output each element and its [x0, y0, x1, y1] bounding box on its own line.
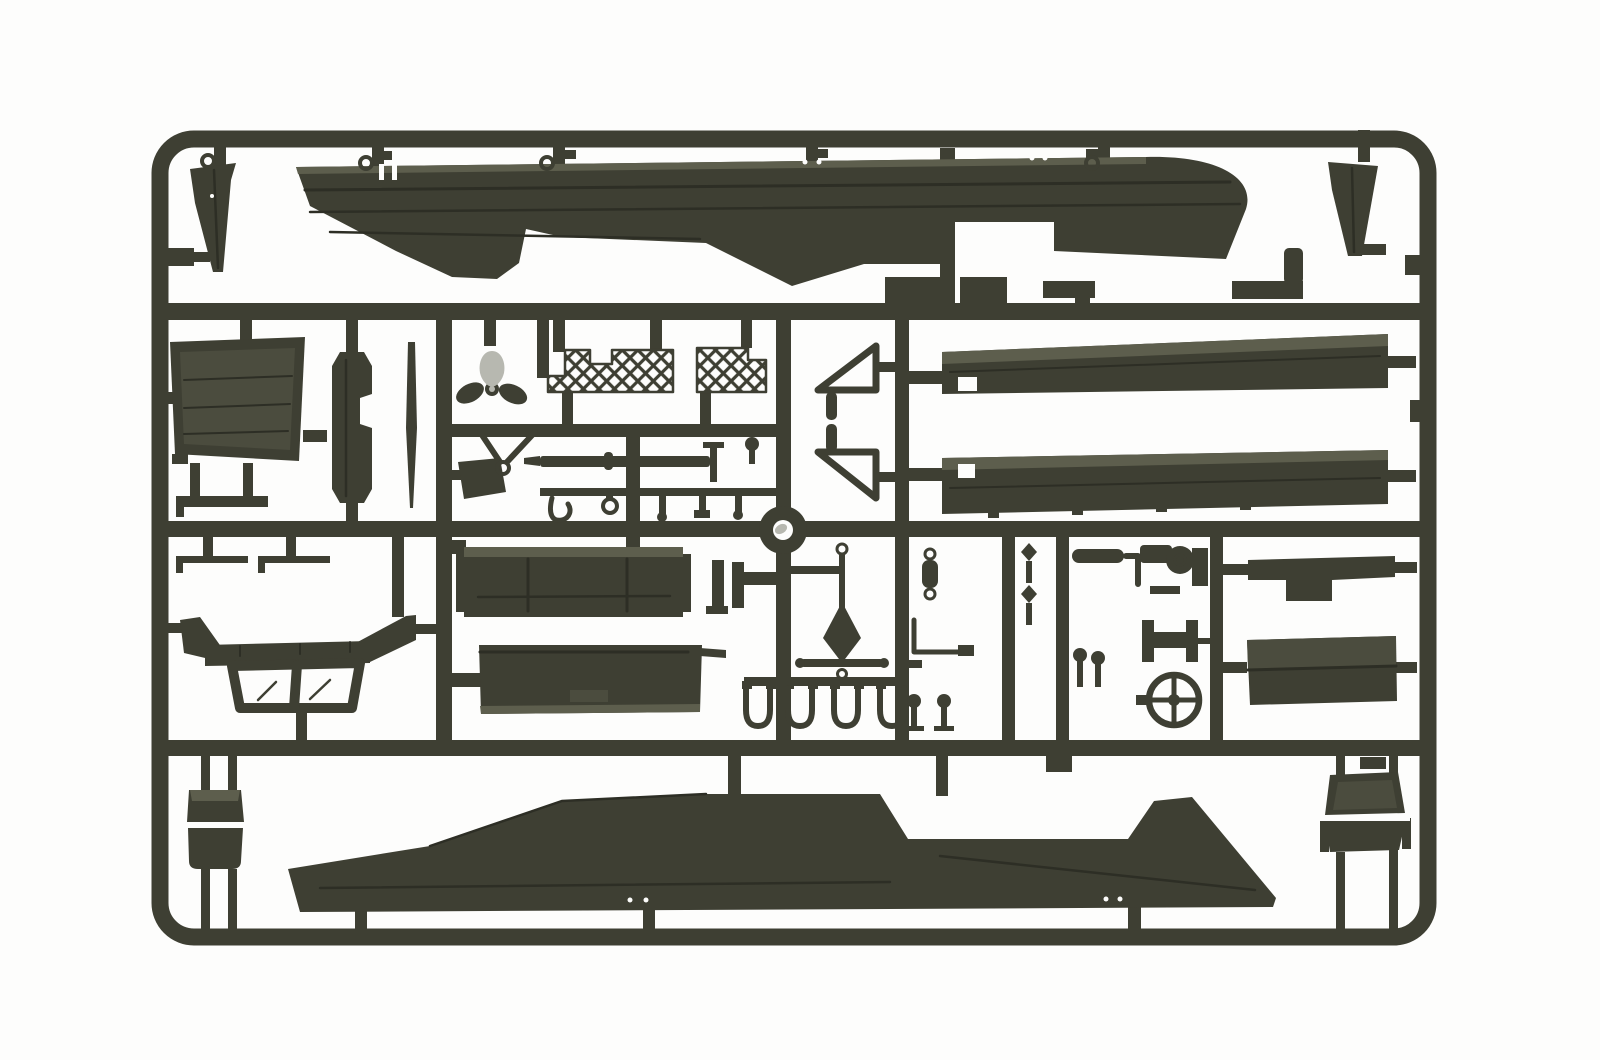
- tray-body: [479, 645, 702, 714]
- sprue-stub: [346, 503, 358, 521]
- seat-back-face: [1333, 780, 1397, 810]
- winch-flange: [1142, 620, 1154, 662]
- winch-axle: [1154, 632, 1186, 648]
- seat-arm: [1402, 818, 1411, 849]
- grab-rod: [258, 556, 330, 563]
- rail-sub-middle: [452, 424, 776, 437]
- suspension-spindle: Suspension spindle: [332, 352, 372, 503]
- sprue-stub: [416, 624, 438, 634]
- radiator-panel-tab: [172, 454, 188, 464]
- seat-cushion: [188, 828, 243, 869]
- sprue-stub: [1388, 470, 1416, 482]
- photo-canvas: Photograph of an injection-moulded plast…: [0, 0, 1600, 1060]
- tray-line: [478, 596, 670, 597]
- barrel-tee-post: [710, 444, 717, 482]
- sprue-stub: [346, 320, 358, 352]
- hull-sink-mark: [379, 164, 384, 180]
- sprue-stub: [448, 673, 482, 687]
- photo-stage: Photograph of an injection-moulded plast…: [0, 0, 1600, 1060]
- tray-top-strip: [464, 547, 683, 557]
- footstep-hook: [176, 505, 184, 517]
- hull-ejector-dot: [1118, 897, 1123, 902]
- sprue-stub: [650, 320, 662, 350]
- grab-rod-bend: [176, 563, 183, 573]
- rail-horizontal-c: [163, 740, 1425, 756]
- hull-ejector-dot: [644, 898, 649, 903]
- seat-rod: [228, 869, 237, 930]
- engine-base: [1150, 586, 1180, 594]
- sprue-stub: [537, 320, 549, 378]
- sprue-stub: [562, 392, 573, 424]
- tee-pin-head: [937, 694, 951, 708]
- anchor-ball: [795, 658, 805, 668]
- plank-hole: [958, 377, 977, 391]
- stowage-bar: [960, 277, 1007, 303]
- sprue-stub: [1395, 562, 1417, 573]
- tray-cap: [681, 554, 691, 612]
- pin: [659, 488, 666, 514]
- barrel-collar: [604, 452, 613, 470]
- seat-arm: [1320, 821, 1329, 852]
- tee-pin-rod: [911, 707, 917, 727]
- radiator-inner: [180, 348, 295, 450]
- engine-muffler: [1072, 549, 1124, 563]
- sprue-stub: [700, 392, 711, 424]
- ball-pin-head: [1073, 648, 1087, 662]
- bracket-arm: [744, 572, 778, 585]
- anchor-ball: [879, 658, 889, 668]
- plank-hole: [958, 464, 975, 478]
- tee-pin-head: [907, 694, 921, 708]
- ball-pin-head: [1091, 651, 1105, 665]
- sprue-stub: [878, 472, 895, 482]
- upper-hull-hinge: [560, 150, 576, 159]
- tee-pin-bar: [904, 726, 924, 731]
- tee-pin-bar: [934, 726, 954, 731]
- ball-pin-rod: [749, 450, 755, 464]
- triangle-link: [826, 392, 837, 420]
- sprue-stub: [440, 540, 466, 554]
- turnbuckle-body: [922, 560, 938, 588]
- winch-crank: [1198, 638, 1214, 644]
- sprue-stub: [1388, 356, 1416, 368]
- hull-ejector-dot: [1104, 897, 1109, 902]
- bracket-plate: [712, 560, 724, 610]
- box-tray-lower: Equipment tray (lower): [479, 645, 726, 714]
- bracket-foot: [706, 606, 728, 614]
- ball-pin-head: [745, 437, 759, 451]
- tee-pin-rod: [941, 707, 947, 727]
- seat-bracket: [1360, 757, 1386, 769]
- sprue-stub: [392, 537, 404, 617]
- seat-rod: [1389, 850, 1398, 930]
- ball-pin-rod: [1077, 661, 1083, 687]
- upper-hull-hinge: [810, 149, 828, 158]
- stowage-bar: [885, 277, 948, 303]
- right-rail-nub: [1410, 400, 1426, 422]
- propeller-spinner-shine: [489, 386, 495, 392]
- sprue-stub: [728, 756, 741, 796]
- sprue-stub: [1223, 564, 1248, 575]
- lever-foot: [908, 660, 922, 668]
- tray-cap: [456, 554, 466, 612]
- sprue-stub: [166, 623, 182, 633]
- sprue-stub: [243, 463, 253, 496]
- hull-ejector-dot: [1043, 156, 1048, 161]
- diamond-pin-rod: [1026, 603, 1032, 625]
- sprue-stub: [878, 362, 895, 372]
- sprue-stub: [203, 537, 213, 557]
- seat-cushion: [1325, 819, 1406, 852]
- sprue-stub: [936, 756, 948, 796]
- rail-vertical-6: [1056, 537, 1069, 740]
- triangle-link: [826, 424, 837, 452]
- sprue-stub: [190, 463, 200, 496]
- barrel-body: [540, 456, 710, 467]
- box-tray-upper: Equipment tray (upper): [456, 547, 691, 617]
- deck-plank-tab: [1240, 503, 1251, 510]
- pin-ball: [657, 512, 667, 522]
- upper-hull-hinge: [376, 151, 392, 160]
- anchor-crossbar: [800, 659, 884, 667]
- bracket-plate: [732, 562, 744, 608]
- seat-gap: [1322, 815, 1410, 821]
- engine-bracket: [1192, 548, 1208, 586]
- left-rail-tab: [194, 252, 210, 262]
- footstep-bar: Foot step bracket: [176, 496, 268, 507]
- sprue-stub: [1362, 244, 1386, 255]
- rail-vertical-5: [1002, 537, 1015, 740]
- left-rail-tab: [166, 248, 194, 266]
- grab-rod-bend: [258, 563, 265, 573]
- rail-horizontal-a: [163, 303, 1425, 320]
- fender-upper-face: [1247, 636, 1396, 670]
- seat-rod: [201, 756, 210, 790]
- sprue-stub: [790, 566, 842, 574]
- hull-ejector-dot: [628, 898, 633, 903]
- sprue-stub: [741, 320, 752, 348]
- hull-ejector-dot: [817, 160, 822, 165]
- seat-back-top: [190, 790, 240, 801]
- sprue-stub: [240, 320, 252, 342]
- hull-sink-mark: [392, 164, 397, 180]
- sprue-stub: [1358, 130, 1370, 162]
- ball-pin-rod: [1095, 664, 1101, 687]
- right-rail-nub: [1405, 255, 1421, 275]
- sprue-stub: [1395, 662, 1417, 673]
- seat-gap: [184, 822, 246, 828]
- tray-body: [464, 547, 683, 617]
- sprue-stub: [553, 320, 565, 352]
- sprue-stub: [303, 430, 327, 442]
- diamond-pin-rod: [1026, 561, 1032, 583]
- pin: [699, 488, 706, 512]
- engine-flange: [1166, 546, 1194, 574]
- winch-flange: [1186, 620, 1198, 662]
- deck-plank-tab: [1072, 508, 1083, 515]
- grab-rod: [176, 556, 248, 563]
- sprue-stub: [1223, 662, 1247, 673]
- seat-rod: [201, 869, 210, 930]
- sprue-stub: [909, 371, 942, 384]
- pin-ball: [733, 510, 743, 520]
- hull-ejector-dot: [1030, 156, 1035, 161]
- seat-rod: [1336, 852, 1345, 930]
- stowage-bar: [1043, 281, 1095, 298]
- sprue-stub: [909, 468, 942, 481]
- sprue-stub: [484, 320, 496, 346]
- deck-plank-tab: [988, 511, 999, 518]
- rail-vertical-4: [895, 320, 909, 740]
- sprue-stub: [286, 537, 296, 557]
- hull-ejector-dot: [803, 160, 808, 165]
- tray-hatch: [570, 690, 608, 702]
- seat-rod: [228, 756, 237, 790]
- seat-rod: [1336, 756, 1345, 776]
- deck-plank-tab: [1156, 505, 1167, 512]
- sprue-stub: [1046, 756, 1072, 772]
- pin-head: [694, 510, 710, 518]
- stowage-bar-foot: [1075, 298, 1090, 310]
- step-bracket-leg: [1284, 248, 1303, 284]
- windshield-mullion: [294, 665, 297, 708]
- sprue-stub: [626, 437, 640, 547]
- pin: [735, 488, 742, 512]
- barrel-tee-cap: [703, 442, 724, 448]
- cone-dot: [210, 194, 214, 198]
